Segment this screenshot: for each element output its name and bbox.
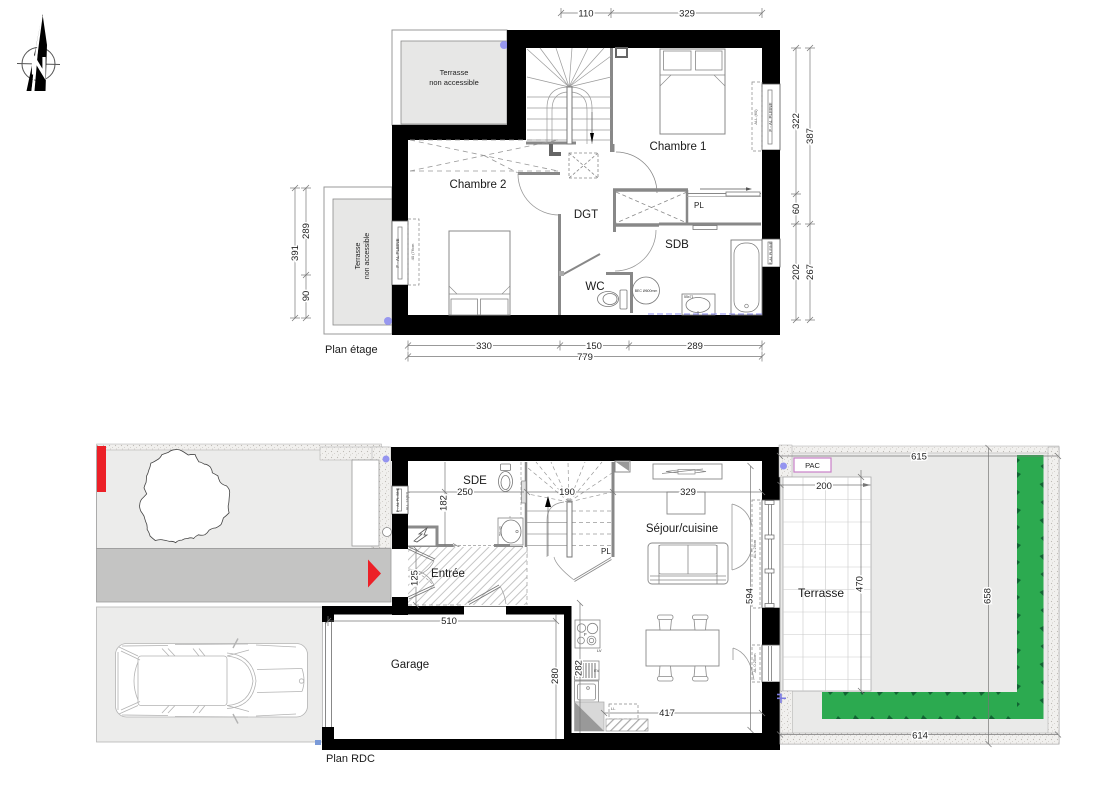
svg-text:150: 150: [586, 341, 602, 352]
svg-text:190: 190: [559, 487, 575, 498]
svg-text:330: 330: [476, 341, 492, 352]
svg-text:Chambre 1: Chambre 1: [650, 141, 707, 153]
svg-text:F: F: [584, 632, 587, 637]
svg-text:387: 387: [805, 128, 816, 144]
svg-text:40 (76cm: 40 (76cm: [410, 243, 415, 260]
svg-text:417: 417: [659, 708, 675, 719]
svg-text:Terrasse: Terrasse: [355, 242, 362, 269]
svg-text:AL 0.25cm: AL 0.25cm: [752, 653, 757, 673]
svg-text:280: 280: [550, 668, 561, 684]
svg-text:F - AL PLEINE: F - AL PLEINE: [768, 102, 773, 131]
svg-text:non accessible: non accessible: [364, 233, 371, 279]
svg-text:DGT: DGT: [574, 209, 598, 221]
svg-text:WC: WC: [585, 281, 604, 293]
svg-text:LV: LV: [597, 648, 602, 653]
svg-text:AL's 26cm: AL's 26cm: [752, 539, 757, 558]
svg-text:50x40: 50x40: [499, 526, 503, 536]
svg-text:329: 329: [680, 487, 696, 498]
svg-text:391: 391: [290, 245, 301, 261]
svg-text:PL: PL: [694, 201, 704, 210]
svg-text:PL: PL: [601, 547, 611, 556]
svg-text:289: 289: [301, 223, 312, 239]
svg-text:322: 322: [791, 113, 802, 129]
svg-text:F-AL PLEINE: F-AL PLEINE: [769, 241, 773, 264]
svg-text:BEC Ø600mm: BEC Ø600mm: [635, 289, 658, 293]
svg-text:Plan étage: Plan étage: [325, 344, 378, 356]
svg-text:Terrasse: Terrasse: [440, 68, 469, 77]
svg-text:125: 125: [410, 570, 421, 586]
svg-text:615: 615: [911, 452, 927, 463]
svg-text:ALL 74(67): ALL 74(67): [406, 491, 410, 510]
svg-text:EV: EV: [594, 668, 600, 673]
svg-text:non accessible: non accessible: [429, 78, 479, 87]
svg-text:Terrasse: Terrasse: [798, 586, 844, 600]
svg-text:LL: LL: [611, 706, 616, 711]
svg-text:510: 510: [441, 616, 457, 627]
svg-text:Plan RDC: Plan RDC: [326, 753, 375, 765]
svg-text:182: 182: [439, 495, 450, 511]
svg-text:282: 282: [574, 660, 585, 676]
svg-text:470: 470: [855, 576, 866, 592]
svg-text:594: 594: [745, 588, 756, 604]
svg-text:267: 267: [805, 264, 816, 280]
svg-text:614: 614: [912, 731, 928, 742]
svg-text:250: 250: [457, 487, 473, 498]
svg-text:Chambre 2: Chambre 2: [450, 179, 507, 191]
svg-text:90: 90: [301, 291, 312, 302]
svg-text:PAC: PAC: [805, 461, 820, 470]
svg-text:SDE: SDE: [463, 475, 487, 487]
svg-text:779: 779: [577, 352, 593, 363]
svg-text:658: 658: [983, 588, 994, 604]
svg-text:200: 200: [816, 481, 832, 492]
svg-text:ALL (60): ALL (60): [753, 109, 758, 125]
svg-text:F - AL PL.BNE: F - AL PL.BNE: [396, 487, 400, 512]
svg-text:Séjour/cuisine: Séjour/cuisine: [646, 523, 718, 535]
svg-text:110: 110: [578, 9, 593, 20]
svg-text:55x71: 55x71: [684, 295, 694, 299]
svg-text:Entrée: Entrée: [431, 568, 465, 580]
svg-text:329: 329: [679, 9, 695, 20]
svg-text:SDB: SDB: [665, 239, 689, 251]
svg-text:F - AL PLEINE: F - AL PLEINE: [395, 238, 400, 267]
svg-text:60: 60: [791, 204, 802, 215]
svg-text:Garage: Garage: [391, 659, 429, 671]
svg-text:202: 202: [791, 264, 802, 280]
svg-text:289: 289: [687, 341, 703, 352]
